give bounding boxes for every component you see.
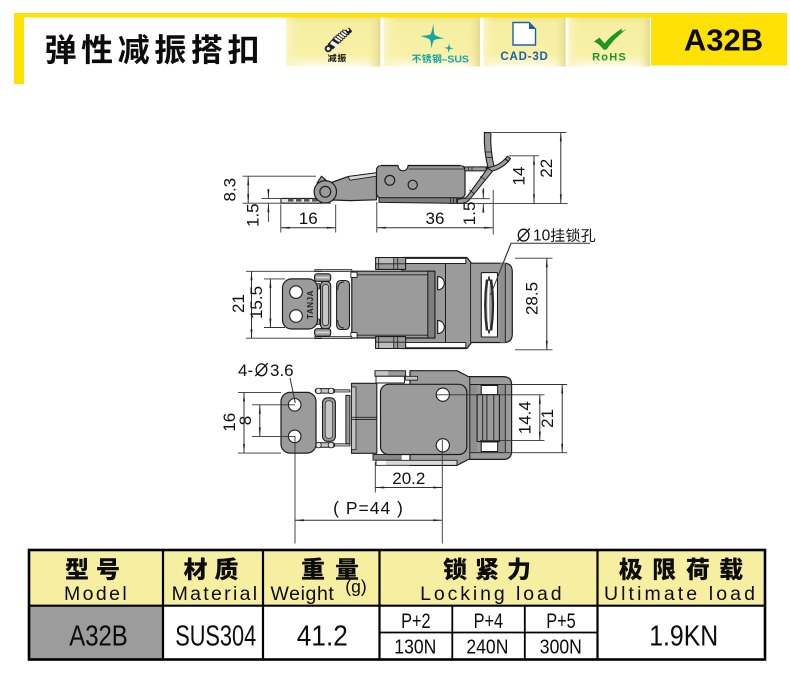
svg-text:10: 10 — [533, 228, 551, 245]
svg-text:A32B: A32B — [69, 621, 128, 653]
svg-text:240N: 240N — [466, 635, 508, 658]
svg-text:1.9KN: 1.9KN — [649, 621, 718, 653]
svg-text:8.3: 8.3 — [221, 178, 240, 202]
svg-text:TANJA: TANJA — [306, 290, 315, 319]
svg-text:20.2: 20.2 — [392, 469, 425, 488]
svg-text:15.5: 15.5 — [247, 286, 266, 319]
svg-text:Ultimate load: Ultimate load — [604, 583, 758, 605]
svg-text:A32B: A32B — [684, 23, 763, 58]
svg-text:21: 21 — [229, 294, 248, 313]
svg-text:–SUS: –SUS — [442, 53, 469, 65]
svg-text:1.5: 1.5 — [460, 202, 479, 226]
svg-text:21: 21 — [538, 409, 557, 428]
svg-text:Model: Model — [64, 583, 129, 605]
svg-text:P+2: P+2 — [401, 610, 431, 633]
svg-text:P+4: P+4 — [474, 610, 504, 633]
svg-text:1.5: 1.5 — [243, 203, 262, 227]
svg-text:3.6: 3.6 — [270, 361, 294, 380]
svg-text:14: 14 — [509, 167, 528, 186]
svg-text:Material: Material — [172, 583, 260, 605]
svg-text:41.2: 41.2 — [297, 621, 348, 653]
svg-text:Weight: Weight — [271, 583, 335, 605]
svg-text:P+5: P+5 — [546, 610, 576, 633]
svg-text:(g): (g) — [345, 577, 366, 597]
svg-text:SUS304: SUS304 — [175, 621, 256, 653]
svg-text:4-: 4- — [238, 361, 253, 380]
svg-text:22: 22 — [537, 159, 556, 178]
svg-text:8: 8 — [236, 416, 255, 425]
svg-text:28.5: 28.5 — [522, 282, 541, 315]
svg-text:RoHS: RoHS — [592, 51, 627, 63]
svg-text:300N: 300N — [540, 635, 582, 658]
svg-text:Locking load: Locking load — [420, 583, 564, 605]
svg-text:( P=44 ): ( P=44 ) — [333, 498, 404, 518]
svg-text:CAD-3D: CAD-3D — [500, 51, 548, 63]
svg-text:130N: 130N — [394, 635, 436, 658]
svg-text:36: 36 — [426, 209, 445, 228]
svg-text:16: 16 — [299, 209, 318, 228]
svg-text:14.4: 14.4 — [516, 401, 535, 434]
